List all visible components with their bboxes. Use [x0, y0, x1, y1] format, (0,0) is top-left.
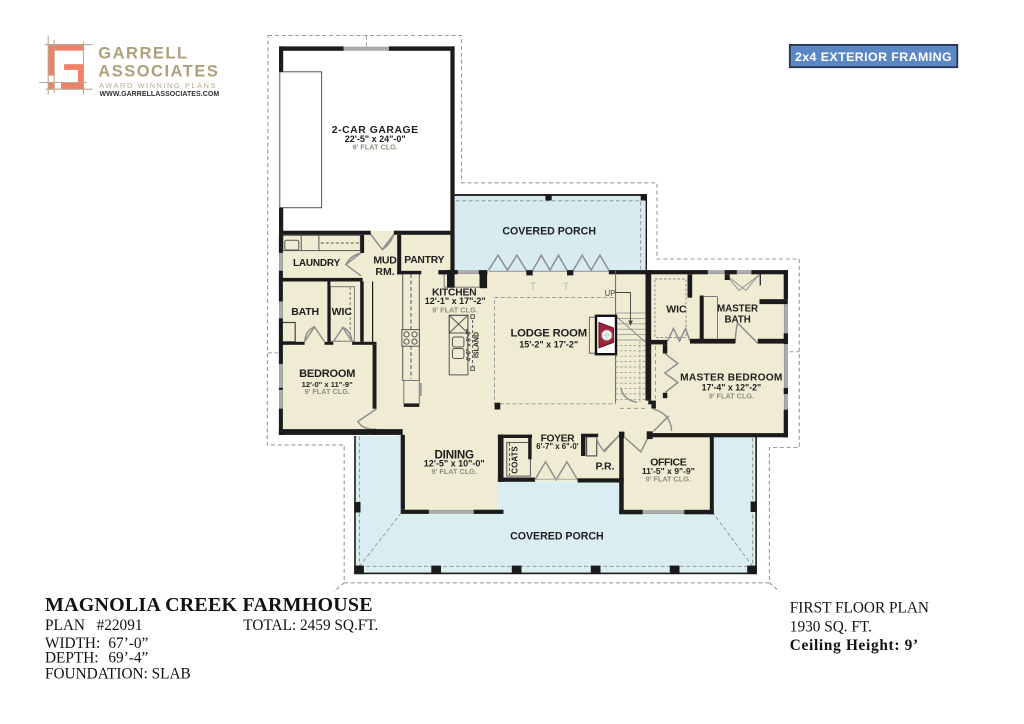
svg-text:9' FLAT CLG.: 9' FLAT CLG. [353, 143, 398, 152]
svg-text:FIRST FLOOR PLAN: FIRST FLOOR PLAN [790, 600, 929, 617]
svg-text:Ceiling Height: 9’: Ceiling Height: 9’ [790, 637, 919, 654]
svg-text:DEPTH:: DEPTH: [45, 649, 99, 666]
svg-text:69’-4”: 69’-4” [108, 649, 148, 666]
svg-text:ASSOCIATES: ASSOCIATES [98, 63, 219, 81]
svg-text:MUD: MUD [373, 255, 397, 267]
svg-text:9' FLAT CLG.: 9' FLAT CLG. [432, 305, 477, 314]
svg-text:WIC: WIC [666, 304, 687, 316]
svg-text:1930 SQ. FT.: 1930 SQ. FT. [790, 619, 872, 636]
svg-text:15'-2" x 17'-2": 15'-2" x 17'-2" [519, 340, 578, 350]
svg-text:UP: UP [605, 289, 616, 298]
svg-text:2x4 EXTERIOR FRAMING: 2x4 EXTERIOR FRAMING [795, 50, 952, 64]
svg-text:P.R.: P.R. [595, 460, 614, 472]
svg-text:BEDROOM: BEDROOM [299, 368, 355, 380]
svg-text:#22091: #22091 [97, 617, 143, 634]
svg-text:9' FLAT CLG.: 9' FLAT CLG. [432, 467, 477, 476]
svg-text:WIC: WIC [332, 306, 353, 318]
svg-text:MASTER: MASTER [717, 303, 758, 314]
svg-text:9' FLAT CLG.: 9' FLAT CLG. [305, 387, 350, 396]
svg-text:FOUNDATION: SLAB: FOUNDATION: SLAB [45, 666, 191, 683]
svg-text:ISLAND: ISLAND [474, 332, 481, 358]
svg-text:9' FLAT CLG.: 9' FLAT CLG. [709, 391, 754, 400]
svg-text:9' FLAT CLG.: 9' FLAT CLG. [646, 474, 691, 483]
svg-text:COVERED PORCH: COVERED PORCH [502, 226, 596, 238]
svg-text:COATS: COATS [511, 446, 520, 474]
svg-text:WWW.GARRELLASSOCIATES.COM: WWW.GARRELLASSOCIATES.COM [100, 91, 220, 98]
svg-text:COVERED PORCH: COVERED PORCH [510, 531, 604, 543]
svg-text:RM.: RM. [375, 266, 394, 278]
svg-text:PLAN: PLAN [45, 617, 85, 634]
svg-text:4'-6" x 8'-6": 4'-6" x 8'-6" [467, 329, 473, 362]
svg-text:MAGNOLIA CREEK FARMHOUSE: MAGNOLIA CREEK FARMHOUSE [45, 594, 373, 616]
svg-text:AWARD WINNING PLANS: AWARD WINNING PLANS [99, 81, 217, 90]
svg-text:LAUNDRY: LAUNDRY [293, 258, 341, 269]
svg-text:BATH: BATH [291, 306, 319, 318]
svg-text:GARRELL: GARRELL [98, 44, 188, 62]
svg-text:6'-7" x 6"-0': 6'-7" x 6"-0' [536, 442, 578, 451]
svg-text:TOTAL: 2459 SQ.FT.: TOTAL: 2459 SQ.FT. [243, 617, 378, 634]
svg-text:PANTRY: PANTRY [404, 255, 444, 266]
svg-text:BATH: BATH [725, 315, 751, 326]
svg-text:LODGE ROOM: LODGE ROOM [510, 328, 586, 340]
